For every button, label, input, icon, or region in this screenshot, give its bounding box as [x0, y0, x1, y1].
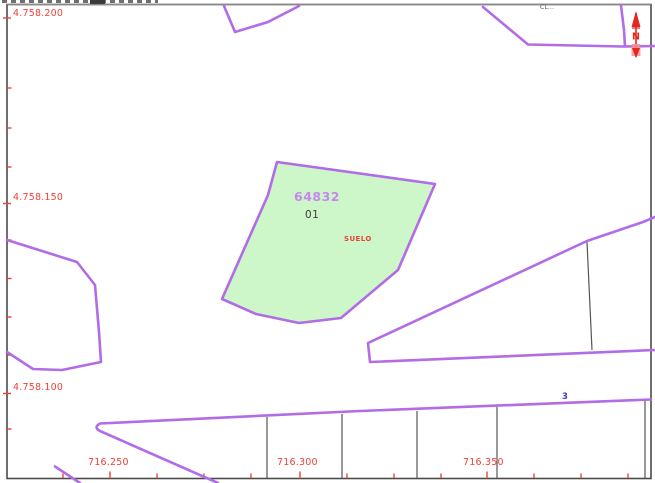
parcel-64832-polygon[interactable] — [222, 162, 435, 323]
map-canvas[interactable]: N 4.758.200 4.758.150 4.758.100 716.250 … — [0, 0, 655, 483]
parcel-outline-bottom-wedge[interactable] — [97, 400, 652, 483]
y-coordinate-label: 4.758.200 — [13, 9, 63, 19]
x-coordinate-label: 716.250 — [88, 458, 129, 468]
street-line-top-right[interactable] — [483, 7, 655, 47]
x-coordinate-label: 716.350 — [463, 458, 504, 468]
street-number-label: 3 — [562, 393, 568, 402]
parcel-outline-top-center[interactable] — [224, 6, 299, 32]
street-line-vertical[interactable] — [621, 6, 625, 47]
parcel-outline-left[interactable] — [7, 240, 101, 370]
street-name-label: CL... — [540, 5, 554, 11]
subparcel-label: 01 — [305, 210, 319, 221]
y-coordinate-label: 4.758.100 — [13, 383, 63, 393]
map-drawing: N — [0, 0, 655, 483]
north-arrow-letter: N — [632, 32, 640, 43]
x-coordinate-label: 716.300 — [277, 458, 318, 468]
parcel-line-bottom-left[interactable] — [55, 467, 80, 483]
north-arrow-icon: N — [630, 11, 642, 58]
y-coordinate-label: 4.758.150 — [13, 193, 63, 203]
land-use-label: SUELO — [344, 236, 372, 243]
parcel-code-label[interactable]: 64832 — [294, 191, 340, 204]
